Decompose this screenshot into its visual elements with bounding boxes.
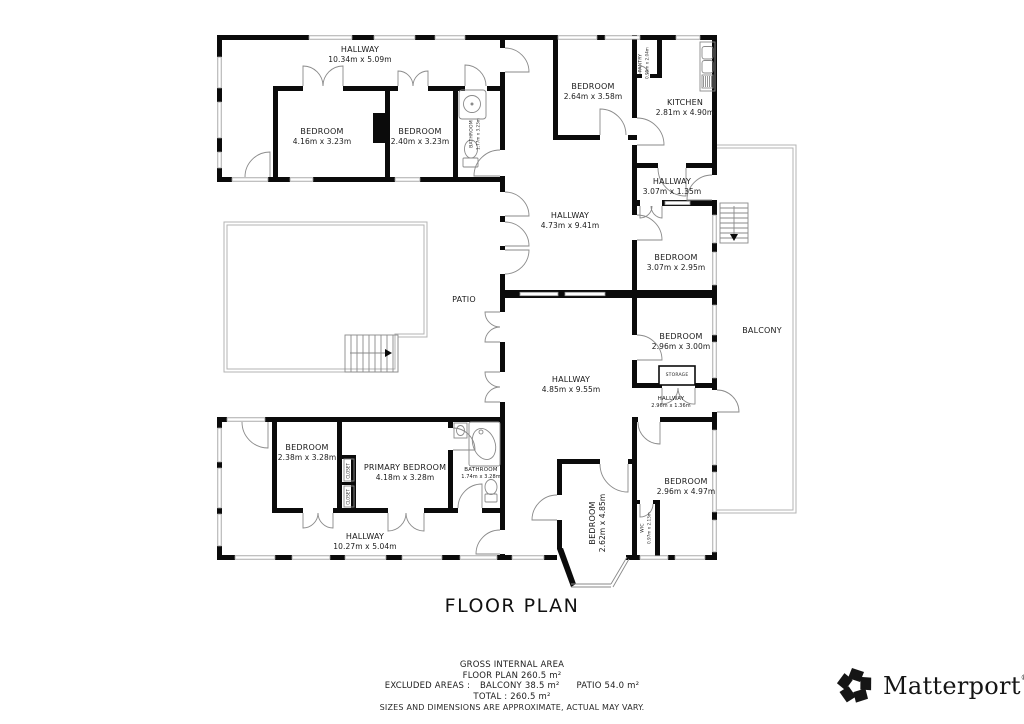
room-label-hallway-central-lower: HALLWAY 4.85m x 9.55m [542, 375, 601, 395]
room-label-hallway-bottom-left: HALLWAY 10.27m x 5.04m [333, 532, 396, 552]
patio-outline [224, 222, 427, 372]
balcony-staircase-icon [720, 203, 748, 243]
sink-icon [454, 423, 467, 438]
room-label-bedroom-top-right: BEDROOM 2.64m x 3.58m [564, 82, 623, 102]
bay-window [571, 557, 629, 587]
room-label-kitchen: KITCHEN 2.81m x 4.90m [656, 98, 715, 118]
room-label-hallway-top-right: HALLWAY 3.07m x 1.35m [643, 177, 702, 197]
room-label-balcony: BALCONY [742, 326, 782, 336]
room-label-bedroom-bay: BEDROOM 2.62m x 4.85m [588, 494, 608, 553]
room-label-primary-bedroom: PRIMARY BEDROOM 4.18m x 3.28m [364, 463, 446, 483]
room-label-closet-1: CLOSET [345, 463, 350, 479]
toilet-icon-2 [485, 480, 497, 503]
room-label-bedroom-right-1: BEDROOM 3.07m x 2.95m [647, 253, 706, 273]
excluded-balcony: BALCONY 38.5 m² [480, 681, 560, 691]
page-title: FLOOR PLAN [0, 595, 1024, 617]
room-label-bedroom-top-left-1: BEDROOM 4.16m x 3.23m [293, 127, 352, 147]
room-label-closet-2: CLOSET [345, 489, 350, 505]
room-label-wic: WIC 0.97m x 2.13m [640, 512, 651, 544]
room-label-hallway-right: HALLWAY 2.96m x 1.36m [651, 396, 690, 410]
room-label-bedroom-right-2: BEDROOM 2.96m x 3.00m [652, 332, 711, 352]
walls [217, 35, 717, 587]
excluded-patio: PATIO 54.0 m² [576, 681, 639, 691]
floor-plan-page: HALLWAY 10.34m x 5.09m BEDROOM 4.16m x 3… [0, 0, 1024, 724]
patio-staircase-icon [345, 335, 398, 372]
matterport-wordmark: Matterport® [883, 672, 1024, 700]
room-label-bathroom-top-left: BATHROOM 1.77m x 3.23m [469, 118, 480, 150]
matterport-logo: Matterport® [833, 664, 1024, 708]
matterport-pinwheel-icon [833, 664, 877, 708]
room-label-bedroom-top-left-2: BEDROOM 2.40m x 3.23m [391, 127, 450, 147]
room-label-patio: PATIO [452, 295, 476, 305]
bathtub-icon [468, 422, 500, 466]
room-label-hallway-central-upper: HALLWAY 4.73m x 9.41m [541, 211, 600, 231]
excluded-areas-label: EXCLUDED AREAS : [385, 681, 470, 691]
room-label-bedroom-bottom-left: BEDROOM 2.38m x 3.28m [278, 443, 337, 463]
room-label-pantry: PANTRY 0.95m x 2.04m [638, 47, 649, 79]
room-label-storage: STORAGE [666, 373, 689, 379]
room-label-hallway-top-left: HALLWAY 10.34m x 5.09m [328, 45, 391, 65]
shower-icon [459, 90, 486, 119]
room-label-bathroom-bottom-left: BATHROOM 1.74m x 3.28m [461, 467, 500, 481]
room-label-bedroom-right-3: BEDROOM 2.96m x 4.97m [657, 477, 716, 497]
kitchen-sink-icon [700, 42, 715, 91]
